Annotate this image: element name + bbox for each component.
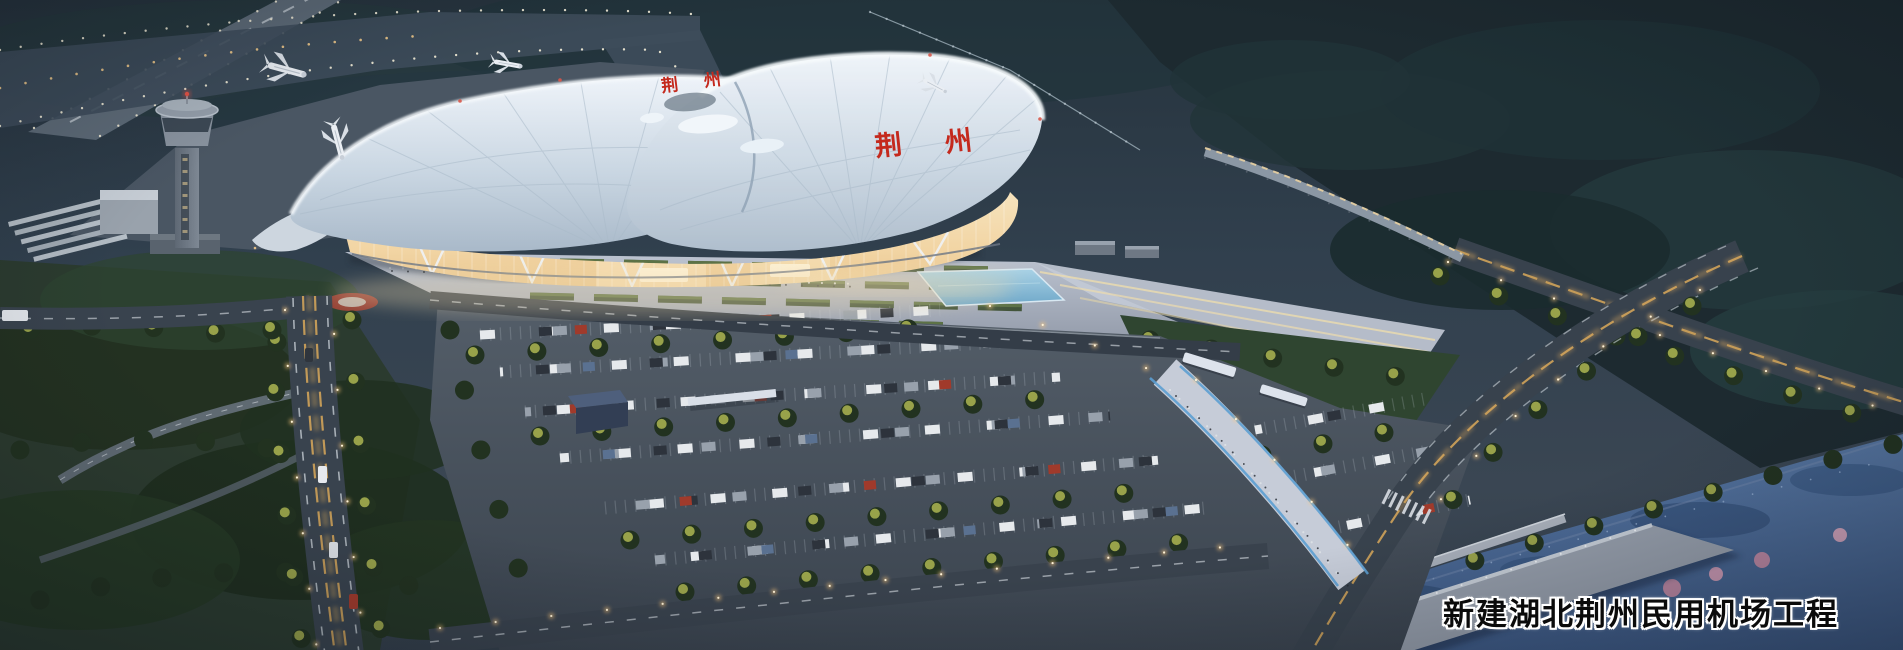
vignette-overlay <box>0 0 1903 650</box>
project-caption: 新建湖北荆州民用机场工程 <box>1443 589 1839 634</box>
airport-aerial-rendering: 荆州 荆 州 <box>0 0 1903 650</box>
rendering-canvas: 荆州 荆 州 <box>0 0 1903 650</box>
